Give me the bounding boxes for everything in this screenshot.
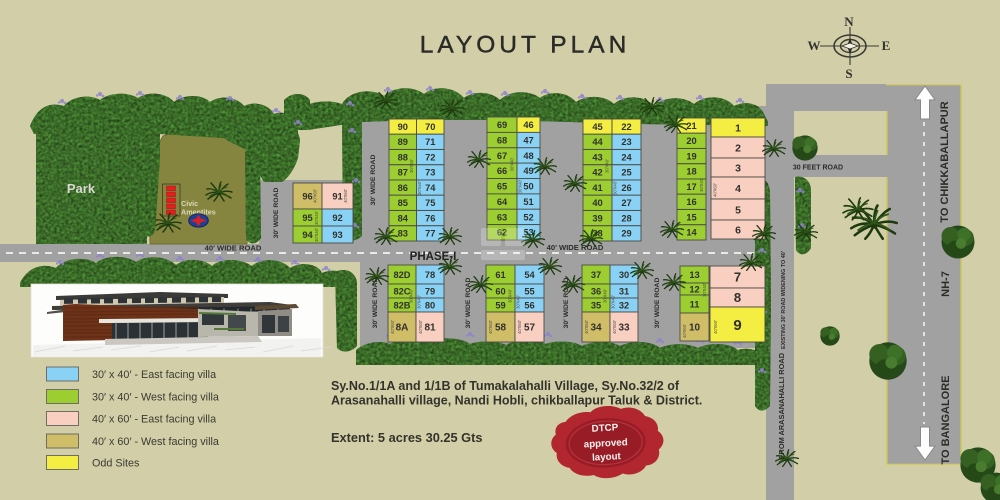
- svg-text:67: 67: [497, 151, 507, 161]
- svg-text:30′ WIDE ROAD: 30′ WIDE ROAD: [370, 155, 377, 206]
- svg-text:20: 20: [686, 136, 696, 146]
- svg-text:58: 58: [495, 323, 507, 334]
- svg-text:24: 24: [621, 152, 632, 162]
- svg-text:36: 36: [591, 286, 601, 296]
- svg-text:30′X40′: 30′X40′: [605, 159, 610, 173]
- svg-text:50: 50: [523, 182, 533, 192]
- svg-text:22: 22: [621, 122, 631, 132]
- svg-text:30 FEET ROAD: 30 FEET ROAD: [793, 165, 843, 172]
- svg-text:47: 47: [523, 135, 533, 145]
- svg-text:70: 70: [425, 122, 435, 132]
- svg-text:2: 2: [735, 142, 741, 154]
- svg-text:DTCP: DTCP: [591, 422, 619, 434]
- svg-text:92: 92: [332, 213, 342, 223]
- svg-text:TO CHIKKABALLAPUR: TO CHIKKABALLAPUR: [939, 101, 951, 222]
- svg-text:25: 25: [621, 168, 631, 178]
- svg-text:6: 6: [735, 224, 741, 236]
- svg-text:5: 5: [735, 204, 741, 216]
- svg-text:16: 16: [686, 197, 696, 207]
- svg-text:40′X60′: 40′X60′: [682, 324, 687, 338]
- svg-text:90: 90: [398, 122, 408, 132]
- svg-text:40′X60′: 40′X60′: [343, 189, 348, 203]
- svg-text:40′ WIDE ROAD: 40′ WIDE ROAD: [547, 243, 604, 252]
- svg-text:layout: layout: [592, 451, 622, 464]
- svg-text:40′X60′: 40′X60′: [713, 183, 718, 197]
- svg-text:89: 89: [398, 137, 408, 147]
- svg-text:93: 93: [332, 230, 342, 240]
- svg-text:41: 41: [592, 183, 602, 193]
- svg-text:17: 17: [686, 182, 696, 192]
- svg-text:30′X40′: 30′X40′: [409, 289, 414, 303]
- svg-text:40′X60′: 40′X60′: [488, 320, 493, 334]
- svg-text:78: 78: [425, 270, 435, 280]
- svg-text:31: 31: [619, 286, 629, 296]
- svg-text:30′X40′: 30′X40′: [516, 295, 521, 309]
- svg-text:59: 59: [495, 300, 505, 310]
- svg-text:Sy.No.1/1A and 1/1B of Tumakal: Sy.No.1/1A and 1/1B of Tumakalahalli Vil…: [331, 379, 680, 393]
- svg-text:30′X40′: 30′X40′: [314, 211, 319, 225]
- svg-text:49: 49: [523, 166, 533, 176]
- svg-text:84: 84: [398, 213, 409, 223]
- svg-text:43: 43: [592, 152, 602, 162]
- svg-text:Extent: 5 acres 30.25 Gts: Extent: 5 acres 30.25 Gts: [331, 430, 483, 445]
- svg-text:77: 77: [425, 229, 435, 239]
- svg-text:40′X60′: 40′X60′: [418, 320, 423, 334]
- svg-text:30′X40′: 30′X40′: [314, 228, 319, 242]
- svg-text:88: 88: [398, 152, 408, 162]
- svg-text:40′X60′: 40′X60′: [313, 189, 318, 203]
- svg-text:10: 10: [689, 323, 701, 334]
- svg-text:12: 12: [689, 284, 699, 294]
- svg-text:42: 42: [592, 168, 602, 178]
- svg-text:40′X60′: 40′X60′: [517, 320, 522, 334]
- svg-text:30′ WIDE ROAD: 30′ WIDE ROAD: [465, 278, 472, 329]
- svg-text:57: 57: [524, 323, 536, 334]
- svg-text:54: 54: [524, 270, 535, 280]
- svg-text:44: 44: [592, 137, 603, 147]
- svg-text:68: 68: [497, 135, 507, 145]
- svg-text:94: 94: [302, 230, 313, 240]
- svg-text:72: 72: [425, 152, 435, 162]
- svg-text:96: 96: [302, 191, 312, 201]
- svg-text:64: 64: [497, 197, 508, 207]
- svg-text:74: 74: [425, 183, 436, 193]
- svg-text:35: 35: [591, 300, 601, 310]
- svg-text:30′X40′: 30′X40′: [702, 283, 707, 297]
- svg-text:23: 23: [621, 137, 631, 147]
- svg-text:30′X40′: 30′X40′: [417, 181, 422, 195]
- svg-text:Park: Park: [67, 181, 96, 196]
- svg-text:34: 34: [590, 323, 602, 334]
- svg-text:15: 15: [686, 212, 696, 222]
- svg-text:65: 65: [497, 182, 507, 192]
- svg-text:40′X60′: 40′X60′: [584, 320, 589, 334]
- svg-text:30′X40′: 30′X40′: [510, 157, 515, 171]
- svg-text:8: 8: [734, 290, 741, 305]
- svg-text:13: 13: [689, 270, 699, 280]
- svg-text:80: 80: [425, 300, 435, 310]
- svg-text:83: 83: [398, 229, 408, 239]
- svg-text:14: 14: [686, 228, 697, 238]
- svg-text:91: 91: [332, 191, 342, 201]
- svg-text:73: 73: [425, 168, 435, 178]
- svg-text:21: 21: [686, 121, 696, 131]
- svg-text:52: 52: [523, 212, 533, 222]
- svg-text:55: 55: [524, 286, 534, 296]
- svg-text:40′ WIDE ROAD: 40′ WIDE ROAD: [205, 244, 262, 253]
- svg-text:N: N: [844, 14, 854, 29]
- svg-text:45: 45: [592, 122, 602, 132]
- svg-text:8A: 8A: [396, 323, 409, 334]
- svg-text:40′ x 60′ - West facing villa: 40′ x 60′ - West facing villa: [92, 436, 219, 448]
- svg-text:Odd Sites: Odd Sites: [92, 458, 140, 470]
- svg-text:85: 85: [398, 198, 408, 208]
- svg-text:26: 26: [621, 183, 631, 193]
- svg-text:71: 71: [425, 137, 435, 147]
- svg-text:30′X40′: 30′X40′: [699, 178, 704, 192]
- svg-text:30′X40′: 30′X40′: [613, 181, 618, 195]
- svg-text:63: 63: [497, 212, 507, 222]
- svg-text:30′X40′: 30′X40′: [417, 295, 422, 309]
- svg-text:30′X40′: 30′X40′: [409, 159, 414, 173]
- svg-text:FROM ARASANAHALLI ROAD: FROM ARASANAHALLI ROAD: [777, 352, 786, 459]
- svg-text:28: 28: [621, 213, 631, 223]
- svg-text:4: 4: [735, 183, 741, 195]
- svg-text:Arasanahalli village, Nandi Ho: Arasanahalli village, Nandi Hobli, chikb…: [331, 394, 702, 408]
- svg-text:LAYOUT PLAN: LAYOUT PLAN: [420, 32, 631, 59]
- svg-text:86: 86: [398, 183, 408, 193]
- svg-text:30′ WIDE ROAD: 30′ WIDE ROAD: [372, 278, 379, 329]
- svg-text:61: 61: [495, 270, 505, 280]
- svg-text:7: 7: [734, 270, 741, 285]
- svg-text:95: 95: [302, 213, 312, 223]
- svg-text:30′X40′: 30′X40′: [611, 295, 616, 309]
- svg-text:51: 51: [523, 197, 533, 207]
- svg-text:EXISTING 30′ ROAD WIDENING TO: EXISTING 30′ ROAD WIDENING TO 40′: [781, 250, 787, 349]
- svg-text:30′ WIDE ROAD: 30′ WIDE ROAD: [654, 278, 661, 329]
- svg-text:56: 56: [524, 300, 534, 310]
- svg-text:TO BANGALORE: TO BANGALORE: [940, 375, 952, 464]
- svg-text:48: 48: [523, 151, 533, 161]
- svg-text:18: 18: [686, 167, 696, 177]
- svg-text:30: 30: [619, 270, 629, 280]
- svg-text:81: 81: [424, 323, 436, 334]
- svg-text:76: 76: [425, 213, 435, 223]
- svg-text:39: 39: [592, 213, 602, 223]
- svg-text:40′X60′: 40′X60′: [390, 320, 395, 334]
- svg-text:9: 9: [733, 317, 741, 334]
- svg-text:75: 75: [425, 198, 435, 208]
- svg-text:30′X40′: 30′X40′: [518, 179, 523, 193]
- svg-text:29: 29: [621, 229, 631, 239]
- svg-text:79: 79: [425, 286, 435, 296]
- svg-text:3: 3: [735, 162, 741, 174]
- svg-text:46: 46: [523, 120, 533, 130]
- svg-text:30′ x 40′ - West facing villa: 30′ x 40′ - West facing villa: [92, 392, 219, 404]
- svg-text:66: 66: [497, 166, 507, 176]
- svg-text:40′X60′: 40′X60′: [612, 320, 617, 334]
- svg-text:11: 11: [690, 299, 700, 309]
- svg-text:30′ WIDE ROAD: 30′ WIDE ROAD: [273, 188, 280, 239]
- svg-text:82D: 82D: [393, 270, 410, 280]
- svg-text:1: 1: [735, 122, 741, 134]
- svg-text:30′X40′: 30′X40′: [508, 289, 513, 303]
- svg-text:approved: approved: [584, 437, 629, 450]
- svg-text:37: 37: [591, 270, 601, 280]
- svg-text:33: 33: [618, 323, 630, 334]
- svg-text:NH-7: NH-7: [940, 271, 952, 297]
- svg-text:PHASE-I: PHASE-I: [410, 251, 457, 263]
- svg-text:19: 19: [686, 151, 696, 161]
- svg-text:27: 27: [621, 198, 631, 208]
- svg-text:69: 69: [497, 120, 507, 130]
- svg-text:S: S: [845, 66, 852, 81]
- svg-text:W: W: [808, 38, 821, 53]
- svg-text:30′ x 40′ - East facing villa: 30′ x 40′ - East facing villa: [92, 369, 216, 381]
- svg-text:87: 87: [398, 168, 408, 178]
- svg-text:60: 60: [495, 286, 505, 296]
- svg-text:30′X40′: 30′X40′: [603, 289, 608, 303]
- svg-text:40′X60′: 40′X60′: [713, 320, 718, 334]
- svg-text:E: E: [882, 38, 891, 53]
- svg-text:40′ x 60′ - East facing villa: 40′ x 60′ - East facing villa: [92, 414, 216, 426]
- svg-text:40: 40: [592, 198, 602, 208]
- svg-text:32: 32: [619, 300, 629, 310]
